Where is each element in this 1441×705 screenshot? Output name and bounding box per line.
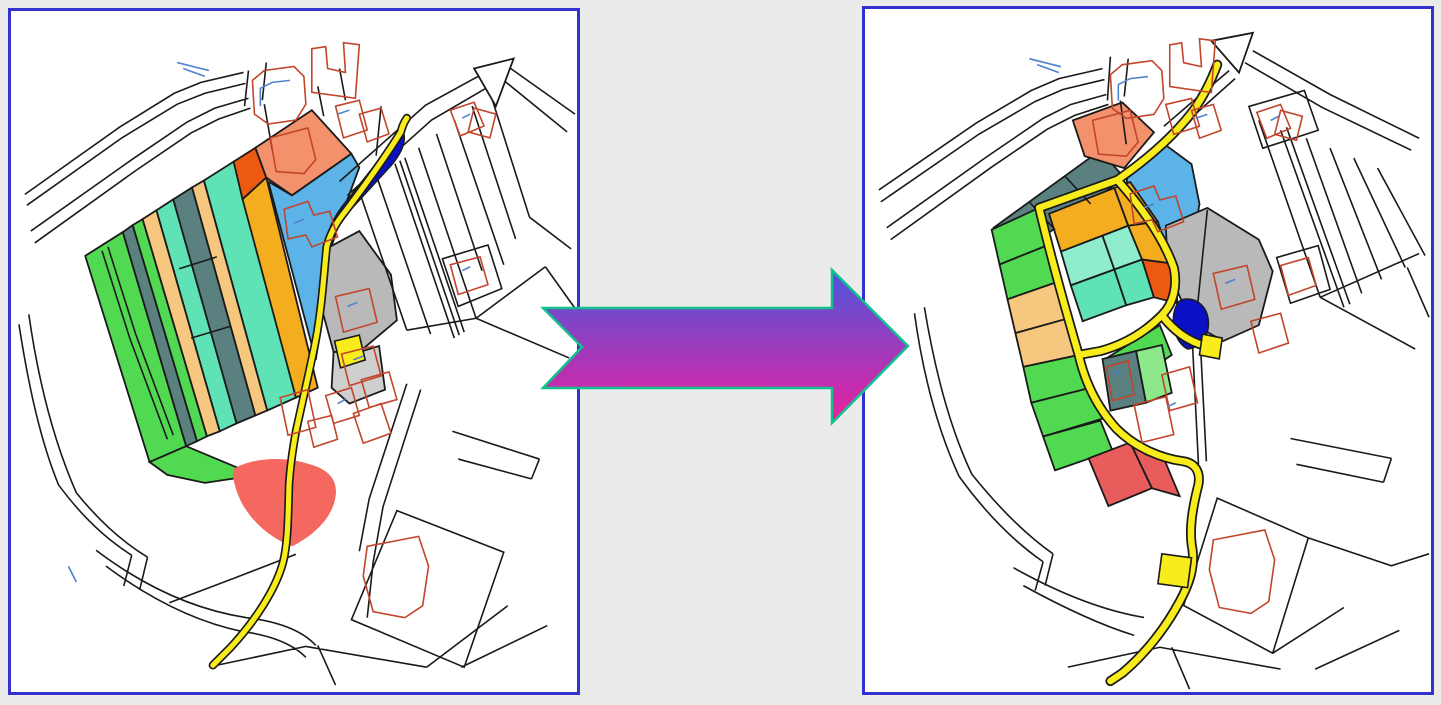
parcel-strips: [85, 110, 397, 483]
before-map: [11, 11, 577, 692]
slide-canvas: [0, 0, 1441, 705]
yellow-parcel: [1199, 334, 1222, 359]
right-arrow-icon: [543, 270, 908, 423]
after-map-panel: [862, 6, 1434, 695]
before-map-panel: [8, 8, 580, 695]
yellow-parcel: [1158, 554, 1192, 588]
road-fork: [474, 59, 514, 107]
transformation-arrow: [535, 258, 920, 433]
after-map: [865, 9, 1431, 692]
